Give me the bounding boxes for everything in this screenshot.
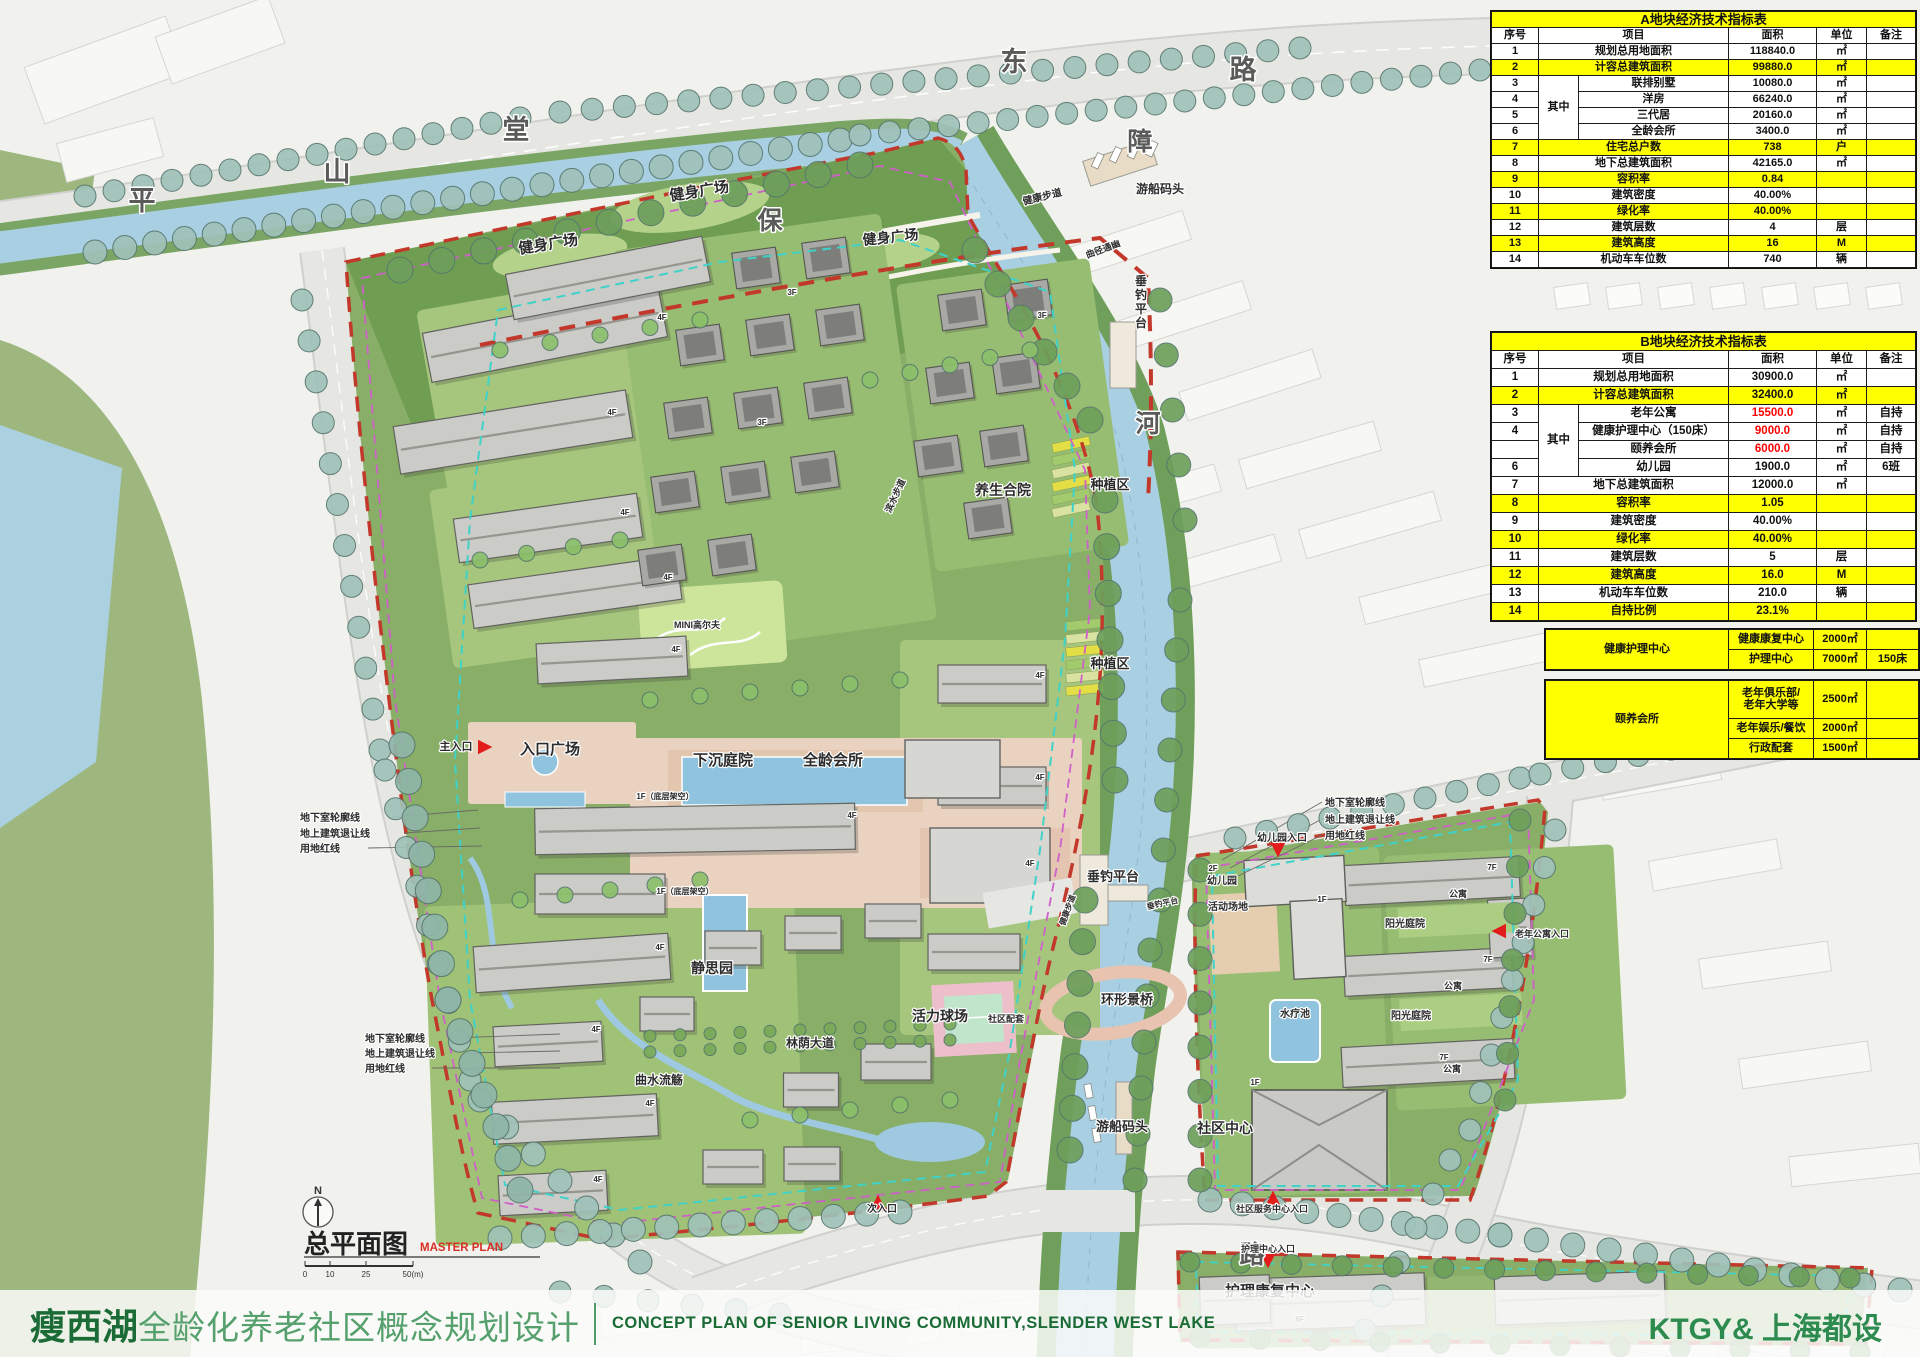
tree-icon (1688, 1264, 1708, 1284)
plan-title-en: MASTER PLAN (420, 1242, 503, 1254)
cell-note (1867, 495, 1916, 513)
cell-area: 40.00% (1729, 531, 1817, 549)
cell-area: 40.00% (1729, 188, 1817, 204)
tree-icon (1026, 105, 1048, 127)
tree-icon (172, 227, 196, 251)
cell-unit (1817, 188, 1867, 204)
cell-item: 行政配套 (1729, 739, 1814, 759)
column-header: 项目 (1539, 28, 1729, 44)
tree-icon (1064, 56, 1086, 78)
tree-icon (764, 1041, 776, 1053)
cell-no: 3 (1492, 405, 1539, 423)
cell-note (1867, 124, 1916, 140)
tree-icon (312, 412, 334, 434)
tree-icon (374, 759, 396, 781)
tree-icon (1102, 767, 1128, 793)
cell-category: 健康护理中心 (1546, 630, 1729, 670)
table-title-row: B地块经济技术指标表 (1492, 333, 1916, 351)
cell-area: 738 (1729, 140, 1817, 156)
map-label: 种植区 (1089, 477, 1129, 492)
cell-area: 42165.0 (1729, 156, 1817, 172)
cell-area: 4 (1729, 220, 1817, 236)
tree-icon (842, 676, 858, 692)
cell-no: 8 (1492, 156, 1539, 172)
tree-icon (1327, 1204, 1351, 1228)
tree-icon (1434, 1258, 1454, 1278)
tree-icon (575, 1196, 599, 1220)
cell-note: 自持 (1867, 423, 1916, 441)
tree-icon (557, 887, 573, 903)
tree-icon (944, 1034, 956, 1046)
cell-item: 建筑高度 (1539, 567, 1729, 585)
map-label: 路 (1230, 54, 1258, 85)
cell-item: 洋房 (1579, 92, 1729, 108)
cell-area: 99880.0 (1729, 60, 1817, 76)
tree-icon (1155, 788, 1179, 812)
cell-note: 自持 (1867, 405, 1916, 423)
cell-no: 8 (1492, 495, 1539, 513)
tree-icon (1095, 580, 1121, 606)
tree-icon (1488, 1223, 1512, 1247)
cell-unit: ㎡ (1817, 156, 1867, 172)
cell-unit (1817, 531, 1867, 549)
cell-area: 10080.0 (1729, 76, 1817, 92)
table-title: A地块经济技术指标表 (1492, 12, 1916, 28)
cell-unit (1817, 603, 1867, 621)
tree-icon (549, 101, 571, 123)
tree-icon (1099, 674, 1125, 700)
map-label: 4F (593, 1175, 602, 1184)
map-label: 幼儿园 (1207, 874, 1237, 887)
cell-area: 9000.0 (1729, 423, 1817, 441)
cell-note (1867, 44, 1916, 60)
tree-icon (1192, 45, 1214, 67)
tree-icon (602, 882, 618, 898)
table-row: 3其中老年公寓15500.0㎡自持 (1492, 405, 1916, 423)
map-label: 用地红线 (1324, 829, 1365, 842)
column-header: 面积 (1729, 28, 1817, 44)
tree-icon (262, 213, 286, 237)
tree-icon (326, 494, 348, 516)
tree-icon (1477, 774, 1499, 796)
map-label: 1F（底层架空） (656, 886, 713, 896)
map-label: 老年公寓入口 (1514, 928, 1569, 939)
tree-icon (710, 87, 732, 109)
cell-area: 0.84 (1729, 172, 1817, 188)
tree-icon (1494, 1089, 1516, 1111)
cell-no: 11 (1492, 204, 1539, 220)
tree-icon (429, 247, 455, 273)
cell-item: 机动车车位数 (1539, 252, 1729, 268)
tree-icon (1586, 1262, 1606, 1282)
courtyard-roof (658, 478, 691, 506)
map-label: 1F (1250, 1078, 1259, 1087)
tree-icon (565, 539, 581, 555)
tree-icon (1094, 534, 1120, 560)
column-header: 序号 (1492, 28, 1539, 44)
tree-icon (441, 186, 465, 210)
tree-icon (1502, 949, 1524, 971)
tree-icon (1165, 638, 1189, 662)
tree-icon (854, 1022, 866, 1034)
courtyard-roof (971, 504, 1004, 532)
map-label: 3F (787, 288, 796, 297)
tree-icon (590, 164, 614, 188)
map-label: 地下室轮廓线 (365, 1032, 425, 1045)
plot-b-indicator-table: B地块经济技术指标表序号项目面积单位备注1规划总用地面积30900.0㎡2计容总… (1491, 332, 1916, 621)
cell-unit: 层 (1817, 220, 1867, 236)
tree-icon (1562, 757, 1584, 779)
cell-no: 7 (1492, 140, 1539, 156)
tree-icon (1524, 1228, 1548, 1252)
cell-area: 1900.0 (1729, 459, 1817, 477)
cell-item: 健康康复中心 (1729, 630, 1814, 650)
project-title-rest: 全龄化养老社区概念规划设计 (138, 1309, 580, 1346)
map-label: 社区中心 (1196, 1120, 1253, 1136)
cell-item: 颐养会所 (1579, 441, 1729, 459)
tree-icon (1062, 1054, 1088, 1080)
cell-area: 30900.0 (1729, 369, 1817, 387)
scale-tick: 0 (303, 1270, 308, 1279)
tree-icon (298, 330, 320, 352)
cell-no: 1 (1492, 44, 1539, 60)
courtyard-roof (715, 541, 748, 569)
map-label: 静思园 (691, 960, 733, 976)
map-label: 7F (1439, 1053, 1448, 1062)
cell-area: 12000.0 (1729, 477, 1817, 495)
tree-icon (1070, 929, 1096, 955)
tree-icon (1032, 59, 1054, 81)
map-label: 障 (1127, 127, 1152, 156)
cell-no: 9 (1492, 172, 1539, 188)
cell-item: 建筑层数 (1539, 549, 1729, 567)
cell-area: 66240.0 (1729, 92, 1817, 108)
tree-icon (692, 872, 708, 888)
tree-icon (348, 616, 370, 638)
cell-unit: ㎡ (1817, 76, 1867, 92)
tree-icon (1054, 373, 1080, 399)
tree-icon (1529, 763, 1551, 785)
tree-icon (1160, 48, 1182, 70)
tree-icon (1507, 856, 1529, 878)
tree-icon (1022, 342, 1038, 358)
footer-divider (594, 1303, 596, 1345)
tree-icon (1321, 74, 1343, 96)
cell-note (1867, 585, 1916, 603)
tree-icon (1057, 1137, 1083, 1163)
tree-icon (1738, 1266, 1758, 1286)
cell-area: 40.00% (1729, 204, 1817, 220)
tree-icon (879, 121, 901, 143)
tree-icon (190, 164, 212, 186)
table-row: 1规划总用地面积30900.0㎡ (1492, 369, 1916, 387)
tree-icon (1077, 407, 1103, 433)
tree-icon (1359, 1207, 1383, 1231)
tree-icon (1161, 688, 1185, 712)
table-row: 9建筑密度40.00% (1492, 513, 1916, 531)
map-label: 活动场地 (1208, 900, 1248, 913)
cell-item: 三代居 (1579, 108, 1729, 124)
tree-icon (1470, 1082, 1492, 1104)
tree-icon (472, 552, 488, 568)
map-label: 4F (1025, 859, 1034, 868)
tree-icon (471, 238, 497, 264)
tree-icon (1115, 96, 1137, 118)
tree-icon (1167, 453, 1191, 477)
map-label: 公寓 (1444, 980, 1462, 991)
tree-icon (805, 162, 831, 188)
cell-item: 容积率 (1539, 495, 1729, 513)
cell-unit: M (1817, 236, 1867, 252)
map-label: 3F (1037, 311, 1046, 320)
tree-icon (402, 805, 428, 831)
tree-icon (742, 1112, 758, 1128)
cell-item: 住宅总户数 (1539, 140, 1729, 156)
cell-no: 4 (1492, 423, 1539, 441)
map-label: 4F (607, 408, 616, 417)
scale-tick: 25 (362, 1270, 371, 1279)
tree-icon (792, 1107, 808, 1123)
cell-item: 联排别墅 (1579, 76, 1729, 92)
tree-icon (798, 132, 822, 156)
tree-icon (1128, 51, 1150, 73)
tree-icon (862, 372, 878, 388)
table-row: 7住宅总户数738户 (1492, 140, 1916, 156)
tree-icon (644, 1046, 656, 1058)
cell-item: 老年俱乐部/ 老年大学等 (1729, 681, 1814, 719)
cell-unit: M (1817, 567, 1867, 585)
tree-icon (341, 575, 363, 597)
tree-icon (1533, 857, 1555, 879)
tree-icon (892, 672, 908, 688)
cell-no: 1 (1492, 369, 1539, 387)
map-label: 4F (591, 1025, 600, 1034)
cell-item: 建筑高度 (1539, 236, 1729, 252)
cell-note (1867, 603, 1916, 621)
cell-note (1867, 369, 1916, 387)
map-label: 1F（底层架空） (636, 791, 693, 801)
cell-area: 40.00% (1729, 513, 1817, 531)
cell-note (1867, 204, 1916, 220)
tree-icon (1129, 1076, 1153, 1100)
cell-item: 全龄会所 (1579, 124, 1729, 140)
cell-item: 护理中心 (1729, 650, 1814, 670)
cell-item: 容积率 (1539, 172, 1729, 188)
cell-no: 6 (1492, 124, 1539, 140)
context-building (1606, 283, 1643, 310)
cell-unit: ㎡ (1817, 459, 1867, 477)
tree-icon (1154, 343, 1178, 367)
tree-icon (849, 124, 871, 146)
tree-icon (1840, 1268, 1860, 1288)
tree-icon (202, 222, 226, 246)
cell-unit: ㎡ (1817, 405, 1867, 423)
tree-icon (655, 1215, 679, 1239)
map-label: 护理中心入口 (1241, 1243, 1295, 1254)
tree-icon (1789, 1267, 1809, 1287)
map-label: 地上建筑退让线 (300, 827, 370, 840)
context-building (1554, 283, 1591, 310)
map-label: 主入口 (440, 739, 473, 753)
tree-icon (409, 841, 435, 867)
tree-icon (1173, 508, 1197, 532)
cell-area: 118840.0 (1729, 44, 1817, 60)
cell-no: 5 (1492, 108, 1539, 124)
tree-icon (704, 1044, 716, 1056)
tree-icon (704, 1028, 716, 1040)
cell-no: 9 (1492, 513, 1539, 531)
cell-no: 2 (1492, 387, 1539, 405)
tree-icon (1144, 93, 1166, 115)
table-row: 9容积率0.84 (1492, 172, 1916, 188)
cell-note (1867, 156, 1916, 172)
map-label: 社区服务中心入口 (1235, 1203, 1308, 1214)
map-label: 河 (1135, 410, 1160, 438)
community-center-building (1252, 1090, 1387, 1190)
tree-icon (1085, 99, 1107, 121)
tree-icon (1168, 588, 1192, 612)
cell-no: 11 (1492, 549, 1539, 567)
tree-icon (1188, 991, 1212, 1015)
tree-icon (1060, 1095, 1086, 1121)
tree-icon (1410, 65, 1432, 87)
column-header: 单位 (1817, 351, 1867, 369)
map-label: 水疗池 (1279, 1007, 1310, 1020)
tree-icon (674, 1045, 686, 1057)
courtyard-roof (999, 359, 1032, 387)
tree-icon (938, 115, 960, 137)
map-label: 种植区 (1089, 656, 1129, 671)
courtyard-roof (753, 321, 786, 349)
cell-no: 12 (1492, 220, 1539, 236)
map-label: 4F (663, 573, 672, 582)
table-title: B地块经济技术指标表 (1492, 333, 1916, 351)
tree-icon (792, 680, 808, 696)
tree-icon (381, 195, 405, 219)
courtyard-roof (798, 458, 831, 486)
cell-note (1867, 76, 1916, 92)
tree-icon (483, 1114, 509, 1140)
tree-icon (500, 177, 524, 201)
map-label: 4F (847, 811, 856, 820)
cell-item: 地下总建筑面积 (1539, 156, 1729, 172)
cell-item: 建筑密度 (1539, 513, 1729, 531)
cell-unit (1817, 495, 1867, 513)
tree-icon (1351, 71, 1373, 93)
map-label: 垂钓平台 (1135, 273, 1147, 330)
cell-no: 3 (1492, 76, 1539, 92)
tree-icon (1132, 1030, 1156, 1054)
tree-icon (739, 141, 763, 165)
tree-icon (638, 200, 664, 226)
map-label: 7F (1483, 955, 1492, 964)
tree-icon (1292, 78, 1314, 100)
tree-icon (422, 123, 444, 145)
tree-icon (1497, 1042, 1519, 1064)
tree-icon (1067, 970, 1093, 996)
cell-no: 4 (1492, 92, 1539, 108)
cell-no: 10 (1492, 531, 1539, 549)
courtyard-roof (987, 432, 1020, 460)
tree-icon (1446, 780, 1468, 802)
tree-icon (1188, 1079, 1212, 1103)
map-label: 地上建筑退让线 (365, 1047, 435, 1060)
tree-icon (1180, 1252, 1200, 1272)
tree-icon (962, 237, 988, 263)
tree-icon (788, 1207, 812, 1231)
courtyard-roof (671, 404, 704, 432)
map-label: 入口广场 (520, 740, 580, 758)
tree-icon (521, 1142, 545, 1166)
tree-icon (1544, 819, 1566, 841)
tree-icon (393, 128, 415, 150)
cell-item: 机动车车位数 (1539, 585, 1729, 603)
cell-item: 规划总用地面积 (1539, 44, 1729, 60)
table-row: 健康护理中心健康康复中心2000㎡ (1546, 630, 1919, 650)
tree-icon (1485, 1259, 1505, 1279)
tree-icon (1504, 902, 1526, 924)
cell-area: 2000㎡ (1814, 719, 1867, 739)
tree-icon (1405, 1217, 1427, 1239)
scale-tick: 50(m) (403, 1270, 424, 1279)
map-label: 地下室轮廓线 (1325, 796, 1385, 809)
tree-icon (1815, 1268, 1839, 1292)
tree-icon (828, 128, 852, 152)
tree-icon (143, 231, 167, 255)
tree-icon (742, 84, 764, 106)
fishing-deck (1108, 885, 1148, 901)
tree-icon (642, 320, 658, 336)
tree-icon (364, 133, 386, 155)
tree-icon (1262, 81, 1284, 103)
cell-note: 6班 (1867, 459, 1916, 477)
column-header: 项目 (1539, 351, 1729, 369)
map-label: 4F (671, 645, 680, 654)
cell-note (1867, 252, 1916, 268)
map-label: 4F (645, 1099, 654, 1108)
map-label: 养生合院 (974, 482, 1031, 498)
tree-icon (842, 1102, 858, 1118)
tree-icon (1224, 827, 1246, 849)
tree-icon (692, 688, 708, 704)
tree-icon (103, 180, 125, 202)
tree-icon (451, 117, 473, 139)
tree-icon (480, 112, 502, 134)
cell-area: 2500㎡ (1814, 681, 1867, 719)
table-row: 12建筑层数4层 (1492, 220, 1916, 236)
tree-icon (369, 739, 391, 761)
cell-note (1867, 60, 1916, 76)
table-row: 10建筑密度40.00% (1492, 188, 1916, 204)
map-label: 垂钓平台 (1087, 869, 1139, 884)
map-label: 用地红线 (299, 842, 340, 855)
cell-area: 1500㎡ (1814, 739, 1867, 759)
tree-icon (1138, 938, 1162, 962)
table-row: 8容积率1.05 (1492, 495, 1916, 513)
cell-group: 其中 (1539, 405, 1579, 477)
tree-icon (492, 342, 508, 358)
cell-no: 14 (1492, 603, 1539, 621)
north-label: N (314, 1185, 322, 1197)
plot-a-indicator-table: A地块经济技术指标表序号项目面积单位备注1规划总用地面积118840.0㎡2计容… (1491, 11, 1916, 268)
tree-icon (764, 1025, 776, 1037)
project-title-en: CONCEPT PLAN OF SENIOR LIVING COMMUNITY,… (612, 1314, 1215, 1333)
tree-icon (619, 159, 643, 183)
tree-icon (884, 1036, 896, 1048)
tree-icon (1123, 1168, 1147, 1192)
tree-icon (935, 68, 957, 90)
cell-note (1867, 739, 1919, 759)
